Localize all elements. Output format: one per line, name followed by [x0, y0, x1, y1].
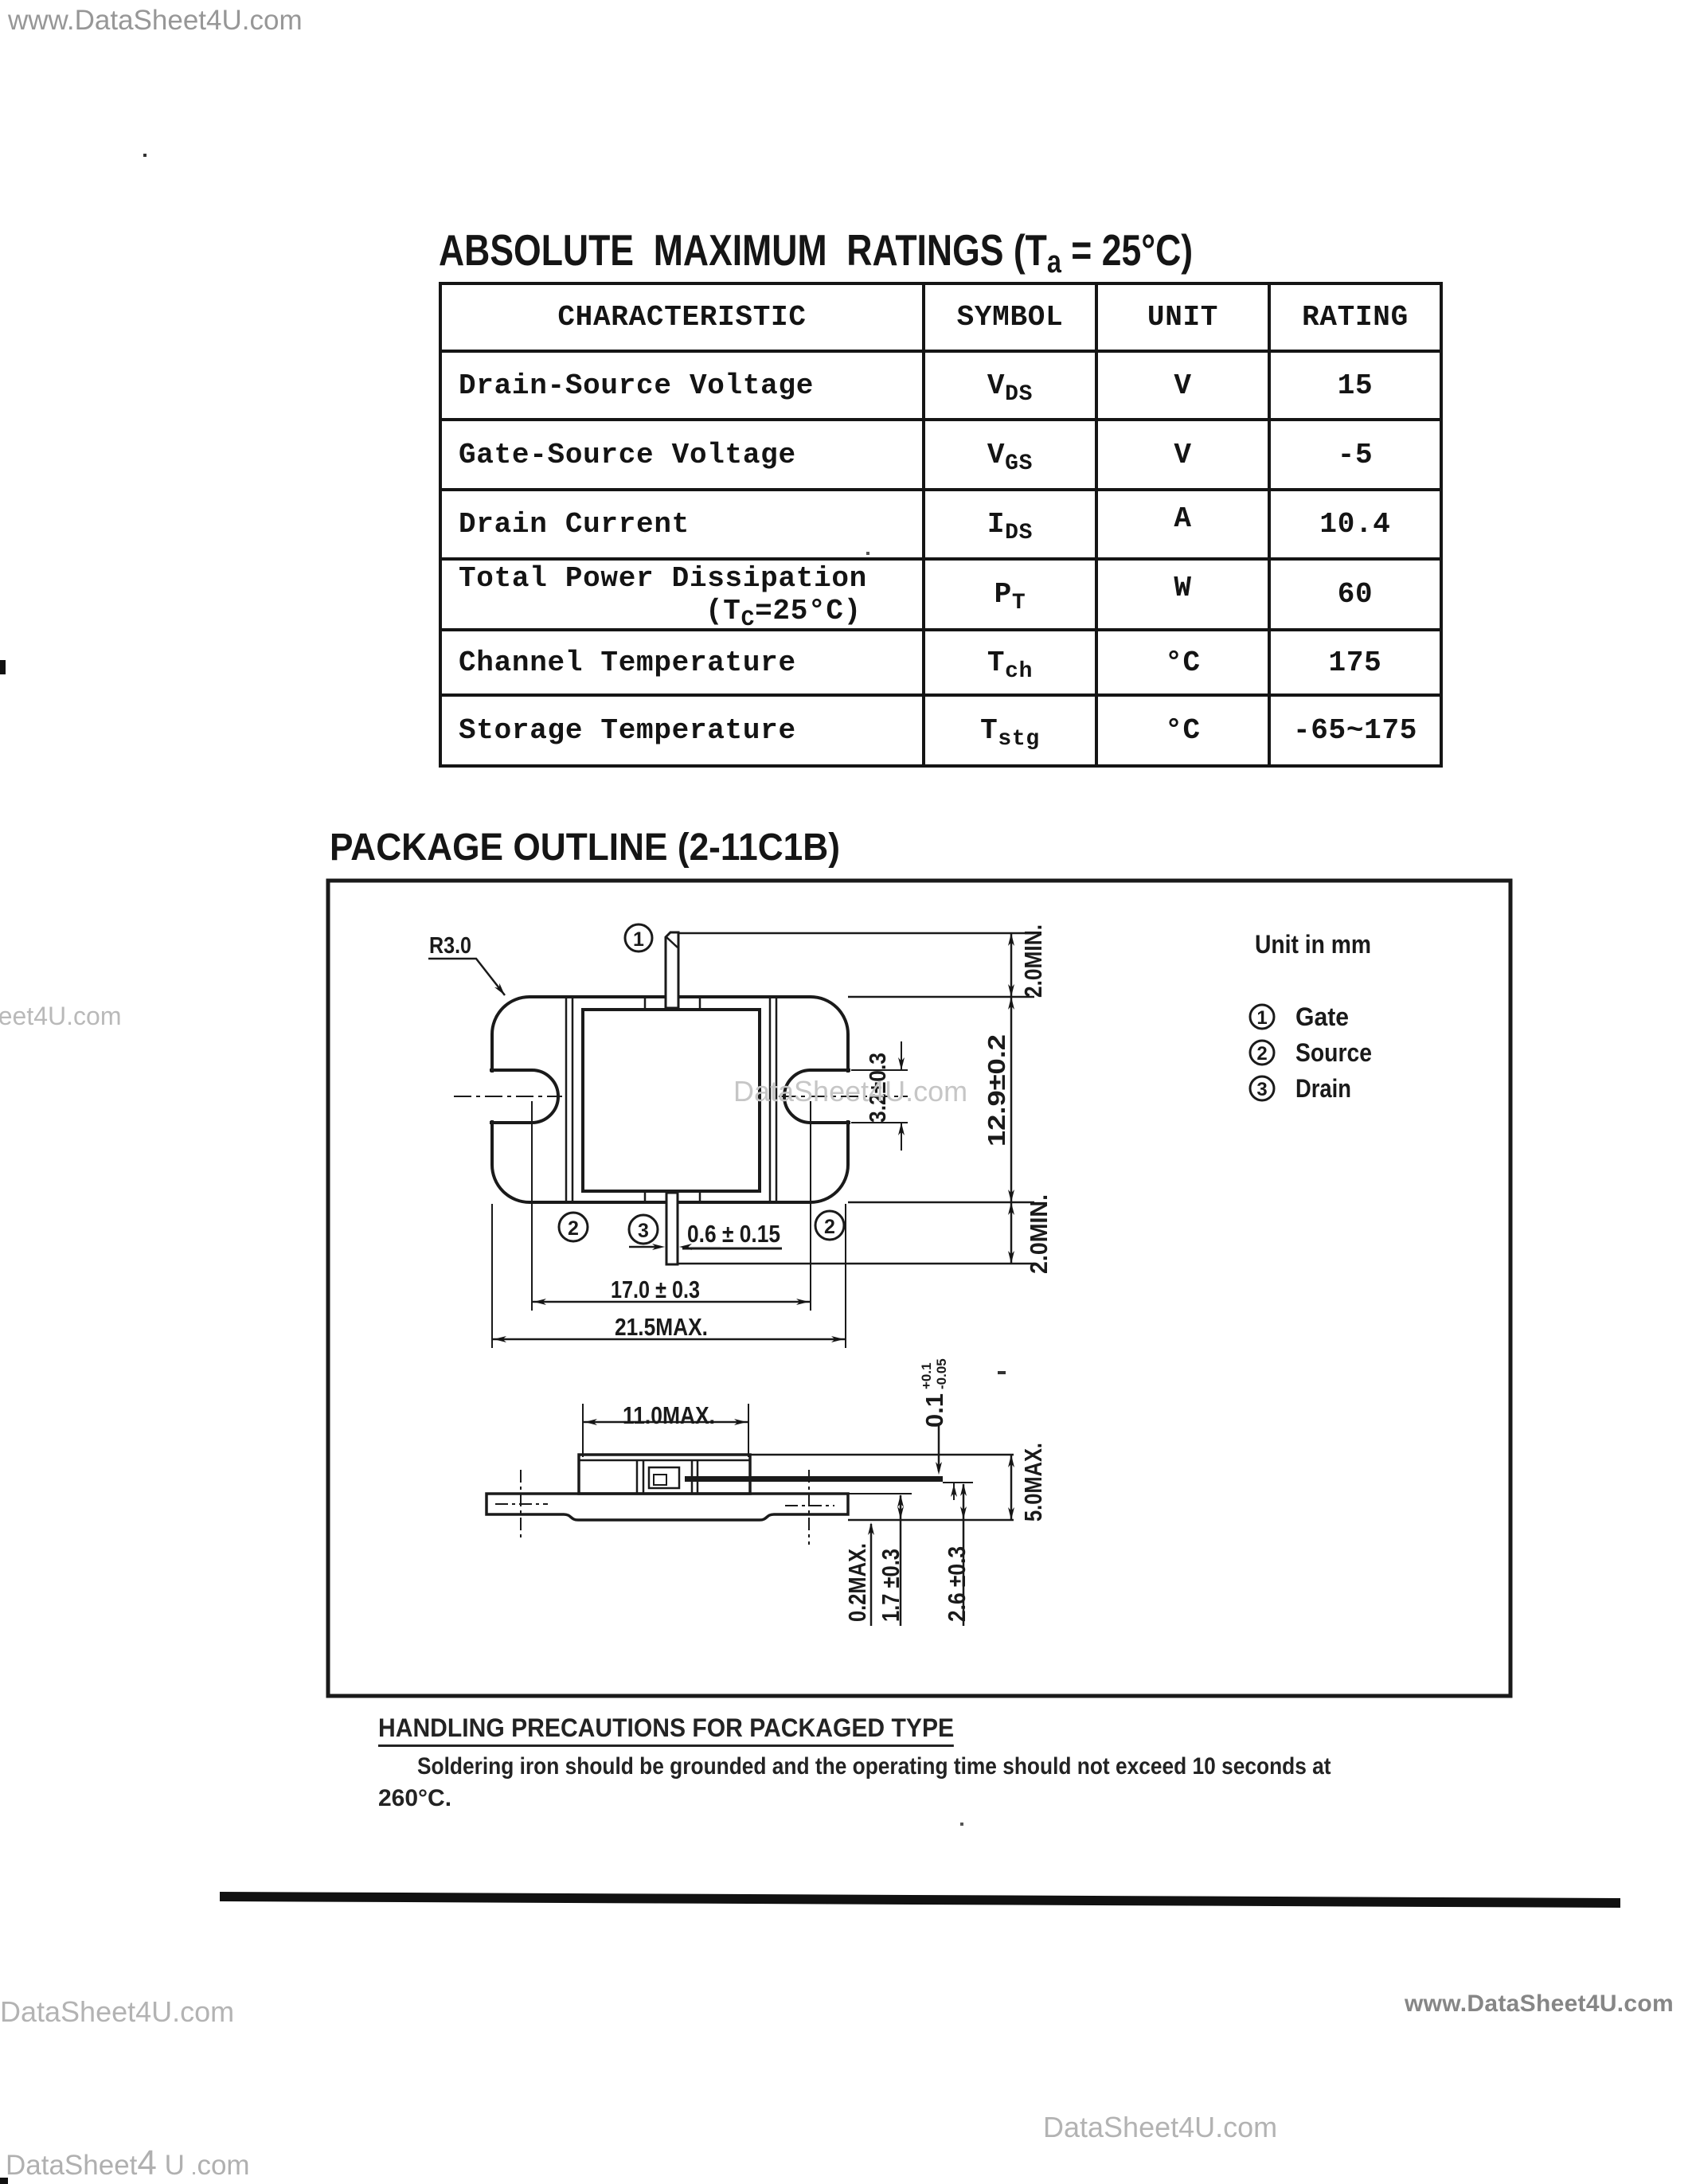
svg-text:Unit in mm: Unit in mm: [1255, 930, 1371, 959]
svg-text:2: 2: [824, 1216, 835, 1238]
svg-text:1: 1: [633, 928, 644, 951]
svg-text:2: 2: [1256, 1043, 1267, 1065]
svg-text:-0.05: -0.05: [934, 1358, 949, 1389]
svg-text:21.5MAX.: 21.5MAX.: [615, 1313, 708, 1341]
svg-text:0.2MAX.: 0.2MAX.: [843, 1543, 871, 1622]
svg-text:2.0MIN.: 2.0MIN.: [1019, 924, 1047, 998]
svg-text:17.0 ± 0.3: 17.0 ± 0.3: [611, 1276, 700, 1303]
svg-text:+0.1: +0.1: [919, 1362, 934, 1389]
svg-text:Drain: Drain: [1295, 1074, 1351, 1103]
svg-text:1: 1: [1256, 1007, 1267, 1029]
svg-text:2.6 ±0.3: 2.6 ±0.3: [943, 1546, 971, 1622]
svg-text:0.6 ± 0.15: 0.6 ± 0.15: [687, 1220, 780, 1248]
svg-text:12.9±0.2: 12.9±0.2: [983, 1034, 1010, 1147]
svg-text:R3.0: R3.0: [429, 933, 471, 959]
svg-text:2: 2: [568, 1217, 579, 1240]
svg-text:2.0MIN.: 2.0MIN.: [1025, 1194, 1053, 1274]
svg-text:3: 3: [638, 1220, 649, 1242]
svg-text:3: 3: [1256, 1079, 1267, 1100]
svg-text:Gate: Gate: [1295, 1002, 1349, 1031]
svg-text:5.0MAX.: 5.0MAX.: [1019, 1443, 1047, 1522]
svg-text:Source: Source: [1295, 1038, 1372, 1067]
svg-text:11.0MAX.: 11.0MAX.: [623, 1401, 715, 1429]
svg-text:0.1: 0.1: [920, 1393, 948, 1428]
svg-text:1.7 ±0.3: 1.7 ±0.3: [877, 1549, 905, 1622]
